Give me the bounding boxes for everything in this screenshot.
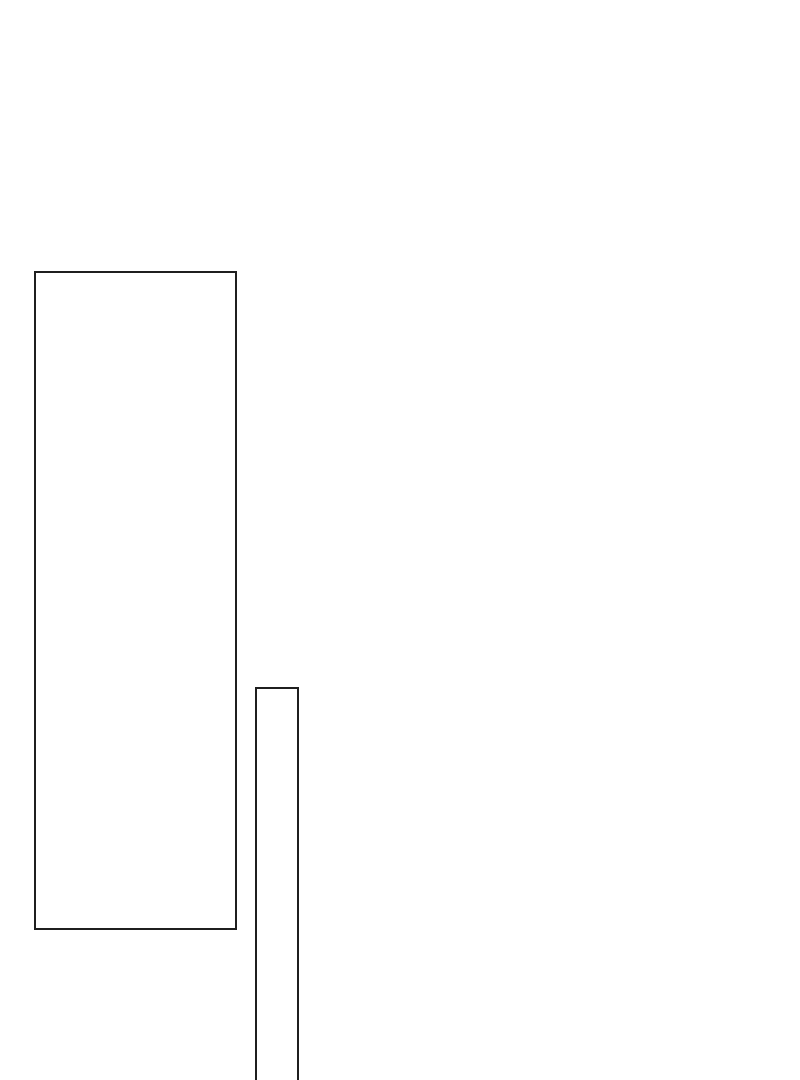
narrow-rectangle (255, 687, 299, 1080)
drawing-canvas (0, 0, 800, 1080)
large-rectangle (34, 271, 237, 930)
